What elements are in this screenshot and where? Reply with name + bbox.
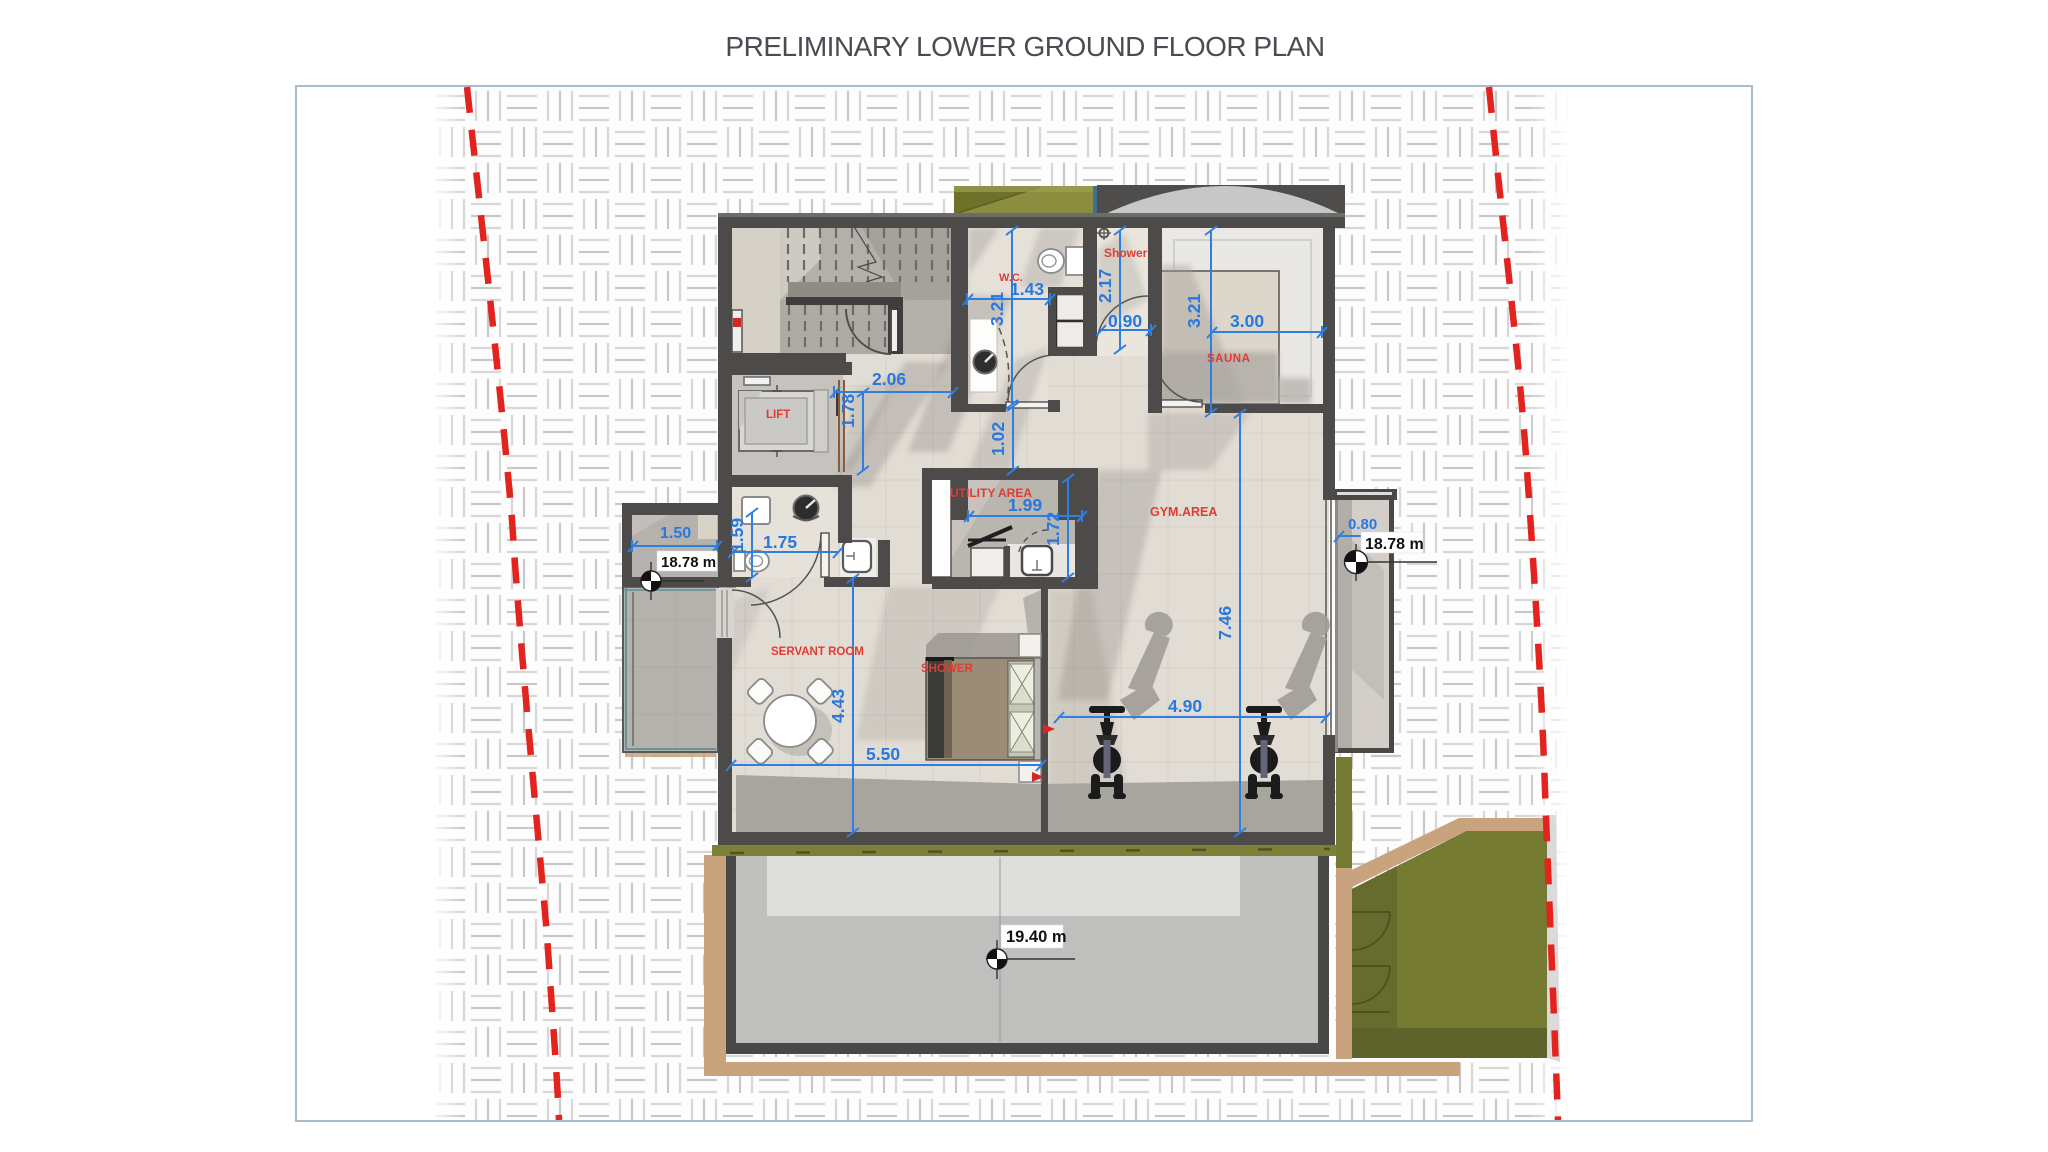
svg-text:0.80: 0.80	[1348, 516, 1377, 533]
svg-text:4.43: 4.43	[828, 689, 848, 723]
svg-text:1.75: 1.75	[763, 532, 797, 552]
svg-text:19.40 m: 19.40 m	[1006, 928, 1067, 946]
svg-text:Shower: Shower	[1104, 246, 1148, 260]
svg-text:18.78 m: 18.78 m	[1365, 536, 1424, 553]
svg-text:LIFT: LIFT	[766, 409, 790, 421]
svg-text:3.21: 3.21	[1184, 294, 1204, 328]
svg-text:1.59: 1.59	[727, 518, 747, 552]
svg-text:0.90: 0.90	[1108, 311, 1142, 331]
svg-text:2.06: 2.06	[872, 369, 906, 389]
svg-text:SAUNA: SAUNA	[1207, 353, 1250, 365]
svg-text:1.72: 1.72	[1043, 512, 1063, 546]
svg-text:3.21: 3.21	[987, 292, 1007, 326]
svg-text:18.78 m: 18.78 m	[661, 554, 716, 571]
svg-text:W.C.: W.C.	[999, 272, 1023, 284]
svg-text:2.17: 2.17	[1095, 269, 1115, 303]
svg-text:5.50: 5.50	[866, 744, 900, 764]
svg-text:4.90: 4.90	[1168, 696, 1202, 716]
svg-text:SERVANT ROOM: SERVANT ROOM	[771, 646, 864, 658]
svg-text:SHOWER: SHOWER	[921, 663, 973, 675]
svg-text:7.46: 7.46	[1215, 606, 1235, 640]
svg-text:1.50: 1.50	[660, 525, 691, 542]
svg-text:3.00: 3.00	[1230, 311, 1264, 331]
svg-text:UTILITY AREA: UTILITY AREA	[950, 486, 1032, 500]
svg-text:1.78: 1.78	[838, 394, 858, 428]
svg-text:1.02: 1.02	[988, 422, 1008, 456]
svg-text:GYM.AREA: GYM.AREA	[1150, 505, 1217, 519]
svg-text:PRELIMINARY LOWER GROUND FLOOR: PRELIMINARY LOWER GROUND FLOOR PLAN	[725, 31, 1324, 62]
